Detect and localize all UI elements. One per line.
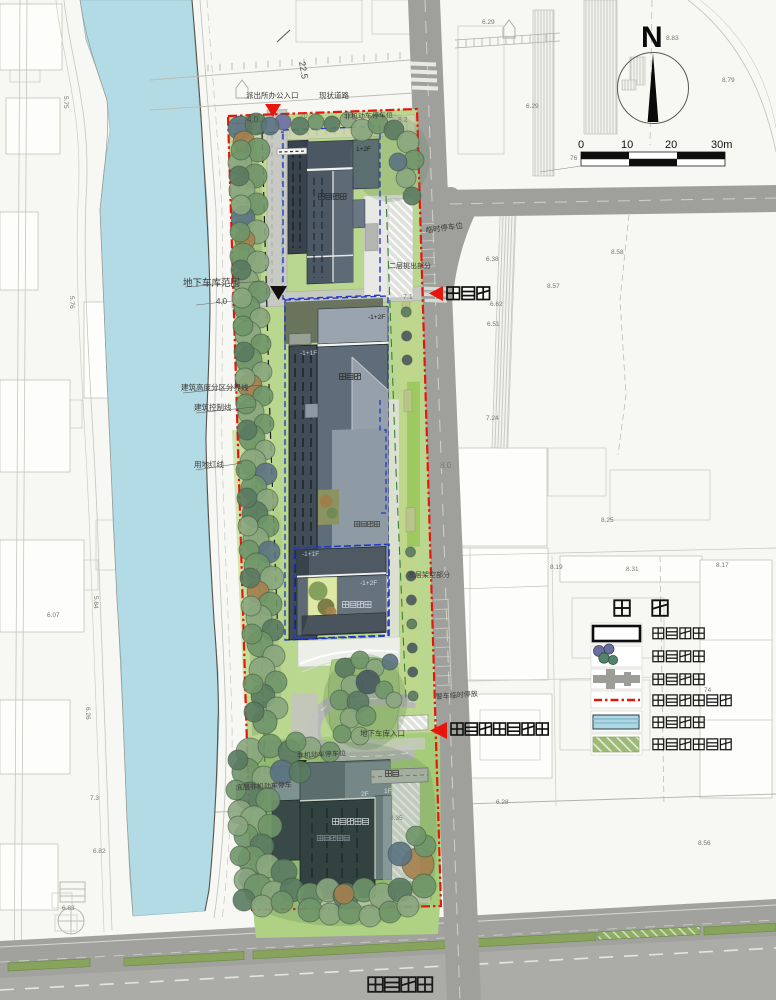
svg-text:-1+2F: -1+2F (368, 314, 385, 321)
svg-text:8.56: 8.56 (698, 840, 711, 847)
svg-text:现状道路: 现状道路 (319, 90, 349, 100)
svg-text:8.79: 8.79 (722, 77, 735, 84)
svg-text:6.29: 6.29 (526, 103, 539, 110)
svg-text:-1+1F: -1+1F (302, 551, 319, 558)
svg-text:N: N (641, 21, 663, 54)
svg-text:-1+1F: -1+1F (300, 350, 317, 357)
svg-text:8.83: 8.83 (666, 35, 679, 42)
svg-text:8.0: 8.0 (440, 461, 452, 470)
svg-text:6.51: 6.51 (487, 321, 500, 328)
svg-text:8.17: 8.17 (716, 562, 729, 569)
svg-text:建筑控制线: 建筑控制线 (194, 402, 232, 412)
svg-text:30m: 30m (711, 139, 732, 151)
svg-text:5.75: 5.75 (62, 96, 69, 109)
svg-text:地下车库入口: 地下车库入口 (360, 728, 405, 738)
svg-text:6.82: 6.82 (93, 848, 106, 855)
svg-text:8.19: 8.19 (550, 564, 563, 571)
svg-text:底层架空部分: 底层架空部分 (408, 570, 450, 579)
svg-text:8.25: 8.25 (601, 517, 614, 524)
svg-text:2F: 2F (361, 791, 369, 798)
svg-text:7.3: 7.3 (90, 795, 99, 802)
svg-text:二层挑出部分: 二层挑出部分 (389, 261, 431, 270)
svg-text:建筑高度分区分界线: 建筑高度分区分界线 (181, 382, 249, 392)
svg-text:6.83: 6.83 (62, 905, 75, 912)
svg-text:5.84: 5.84 (92, 596, 99, 609)
svg-text:用地红线: 用地红线 (194, 459, 224, 469)
svg-text:1F: 1F (384, 788, 392, 795)
svg-text:6.26: 6.26 (84, 707, 91, 720)
svg-text:-1+2F: -1+2F (360, 580, 377, 587)
svg-text:地下车库范围: 地下车库范围 (183, 277, 240, 289)
svg-text:10: 10 (621, 139, 633, 151)
svg-text:6.07: 6.07 (47, 612, 60, 619)
svg-text:0: 0 (578, 139, 584, 151)
svg-text:1+2F: 1+2F (356, 146, 371, 153)
svg-text:6.38: 6.38 (486, 256, 499, 263)
svg-text:6.29: 6.29 (482, 19, 495, 26)
svg-text:6.28: 6.28 (496, 799, 509, 806)
svg-text:派出所办公入口: 派出所办公入口 (246, 90, 299, 100)
svg-text:74: 74 (704, 687, 712, 694)
svg-text:8.57: 8.57 (547, 283, 560, 290)
svg-text:20.2: 20.2 (300, 113, 314, 120)
svg-text:7.24: 7.24 (486, 415, 499, 422)
svg-text:7.1: 7.1 (403, 294, 413, 301)
svg-text:8.2: 8.2 (398, 117, 408, 124)
svg-text:6.62: 6.62 (490, 301, 503, 308)
svg-text:76: 76 (570, 155, 578, 162)
svg-text:8.31: 8.31 (626, 566, 639, 573)
svg-text:5.76: 5.76 (68, 296, 75, 309)
svg-text:20: 20 (665, 139, 677, 151)
svg-text:8.35: 8.35 (390, 815, 403, 822)
svg-text:8.58: 8.58 (611, 249, 624, 256)
